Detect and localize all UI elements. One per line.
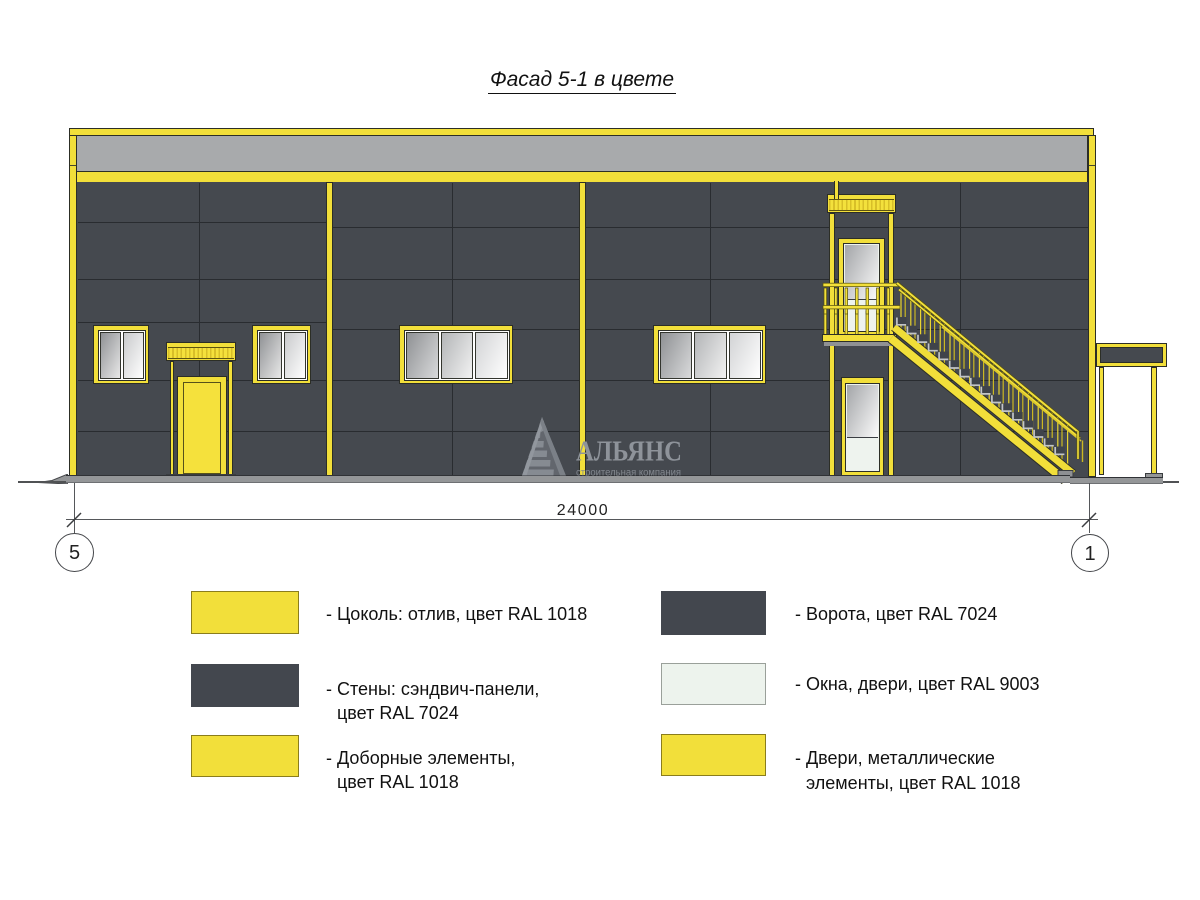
svg-text:строительная компания: строительная компания [576,468,681,479]
svg-text:АЛЬЯНС: АЛЬЯНС [576,436,682,468]
